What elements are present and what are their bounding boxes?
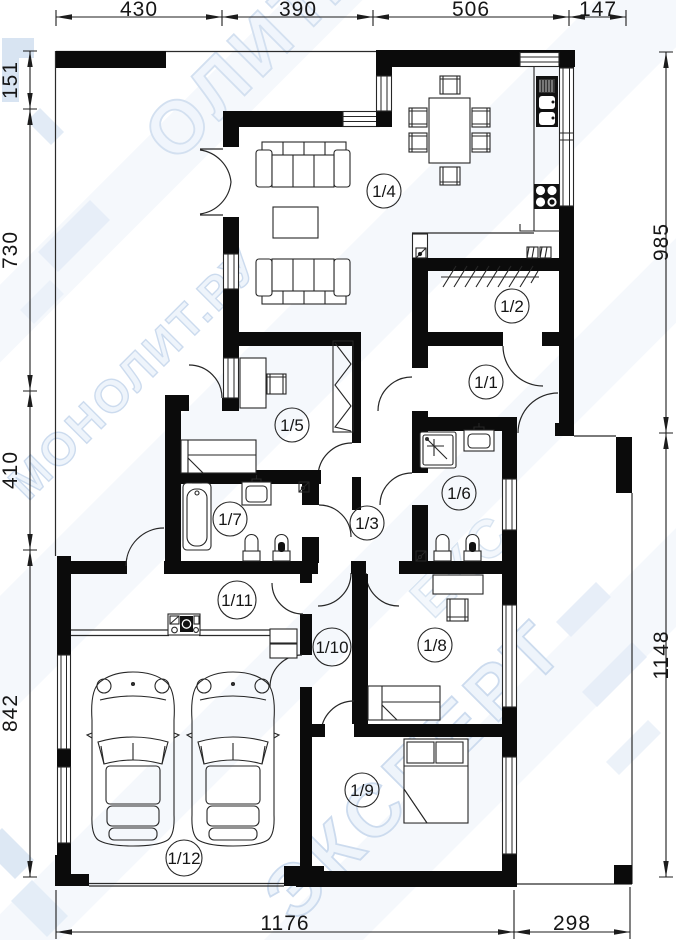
svg-text:730: 730 bbox=[0, 231, 22, 269]
svg-text:1/12: 1/12 bbox=[167, 849, 200, 868]
svg-text:506: 506 bbox=[452, 0, 490, 21]
svg-text:410: 410 bbox=[0, 451, 22, 489]
svg-text:390: 390 bbox=[279, 0, 317, 21]
svg-text:1/9: 1/9 bbox=[350, 781, 374, 800]
svg-text:151: 151 bbox=[0, 61, 22, 99]
svg-text:430: 430 bbox=[120, 0, 158, 21]
svg-text:1/6: 1/6 bbox=[447, 484, 471, 503]
svg-text:1176: 1176 bbox=[260, 912, 309, 935]
svg-text:1/4: 1/4 bbox=[372, 182, 396, 201]
svg-text:842: 842 bbox=[0, 694, 22, 732]
svg-text:1/3: 1/3 bbox=[355, 514, 379, 533]
svg-text:1/1: 1/1 bbox=[474, 373, 498, 392]
svg-text:1/2: 1/2 bbox=[500, 297, 524, 316]
svg-text:1/10: 1/10 bbox=[315, 638, 348, 657]
svg-text:298: 298 bbox=[553, 912, 591, 935]
svg-text:1/11: 1/11 bbox=[221, 591, 253, 610]
svg-text:985: 985 bbox=[650, 223, 673, 261]
svg-text:1/8: 1/8 bbox=[423, 636, 447, 655]
svg-text:1/7: 1/7 bbox=[218, 510, 242, 529]
svg-text:147: 147 bbox=[579, 0, 617, 21]
svg-text:1148: 1148 bbox=[650, 630, 673, 679]
svg-text:1/5: 1/5 bbox=[280, 416, 304, 435]
